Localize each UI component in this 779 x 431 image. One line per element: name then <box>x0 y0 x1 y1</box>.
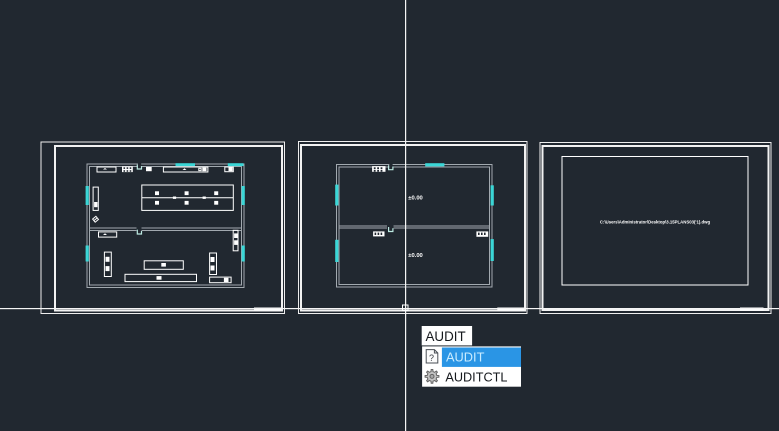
svg-text:±0.00: ±0.00 <box>408 253 422 259</box>
svg-text:AUDIT: AUDIT <box>426 329 466 344</box>
svg-text:AUDITCTL: AUDITCTL <box>445 370 507 384</box>
svg-text:C:\Users\Administrator\Desktop: C:\Users\Administrator\Desktop\3.15PLANS… <box>600 219 711 224</box>
svg-text:±0.00: ±0.00 <box>408 196 422 202</box>
svg-text:AUDIT: AUDIT <box>446 350 485 365</box>
svg-text:?: ? <box>429 353 434 363</box>
